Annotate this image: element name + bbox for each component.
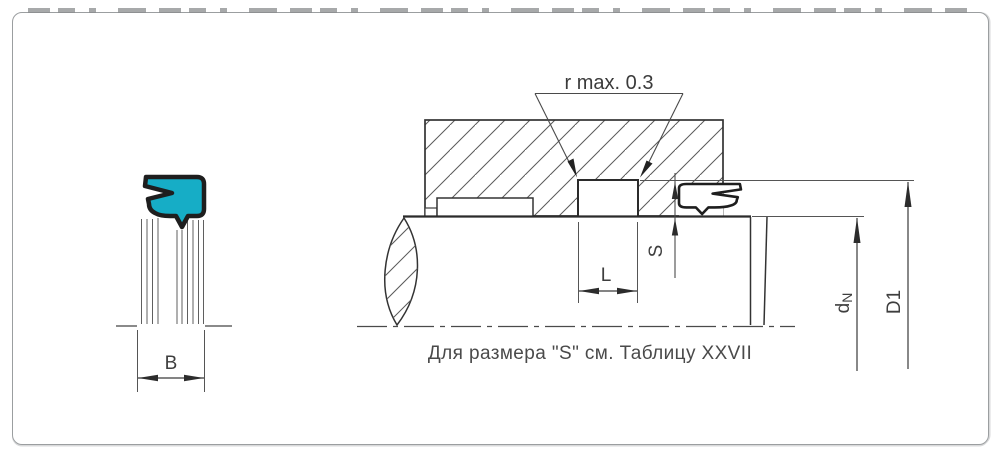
dim-D1-label: D1 bbox=[884, 290, 905, 314]
arrow-left-icon bbox=[579, 288, 599, 294]
dim-B-label: B bbox=[165, 353, 178, 374]
dim-L-label: L bbox=[601, 265, 612, 286]
arrow-left-icon bbox=[138, 375, 158, 381]
arrow-up-icon bbox=[672, 219, 678, 236]
arrow-up-icon bbox=[905, 182, 912, 208]
seal-installation-drawing: B bbox=[0, 0, 1000, 457]
guide-ring bbox=[437, 198, 533, 216]
seal-profile bbox=[145, 177, 204, 227]
arrow-up-icon bbox=[854, 218, 861, 244]
dim-S-label: S bbox=[646, 245, 667, 258]
arrow-right-icon bbox=[617, 288, 637, 294]
callout-r-label: r max. 0.3 bbox=[565, 72, 654, 94]
dimension-B: B bbox=[138, 330, 205, 392]
housing-step-notch bbox=[425, 208, 437, 216]
dimension-D1: D1 bbox=[884, 182, 912, 370]
technical-drawing-page: B bbox=[0, 0, 1000, 457]
rod bbox=[368, 206, 767, 339]
arrow-right-icon bbox=[184, 375, 204, 381]
dimension-dN: dN bbox=[833, 218, 861, 372]
note-text: Для размера "S" см. Таблицу XXVII bbox=[360, 343, 820, 365]
dim-dN-label: dN bbox=[833, 293, 855, 314]
seal-band-lines bbox=[142, 218, 204, 324]
seal-groove bbox=[578, 180, 638, 216]
dimension-L: L bbox=[579, 222, 638, 303]
